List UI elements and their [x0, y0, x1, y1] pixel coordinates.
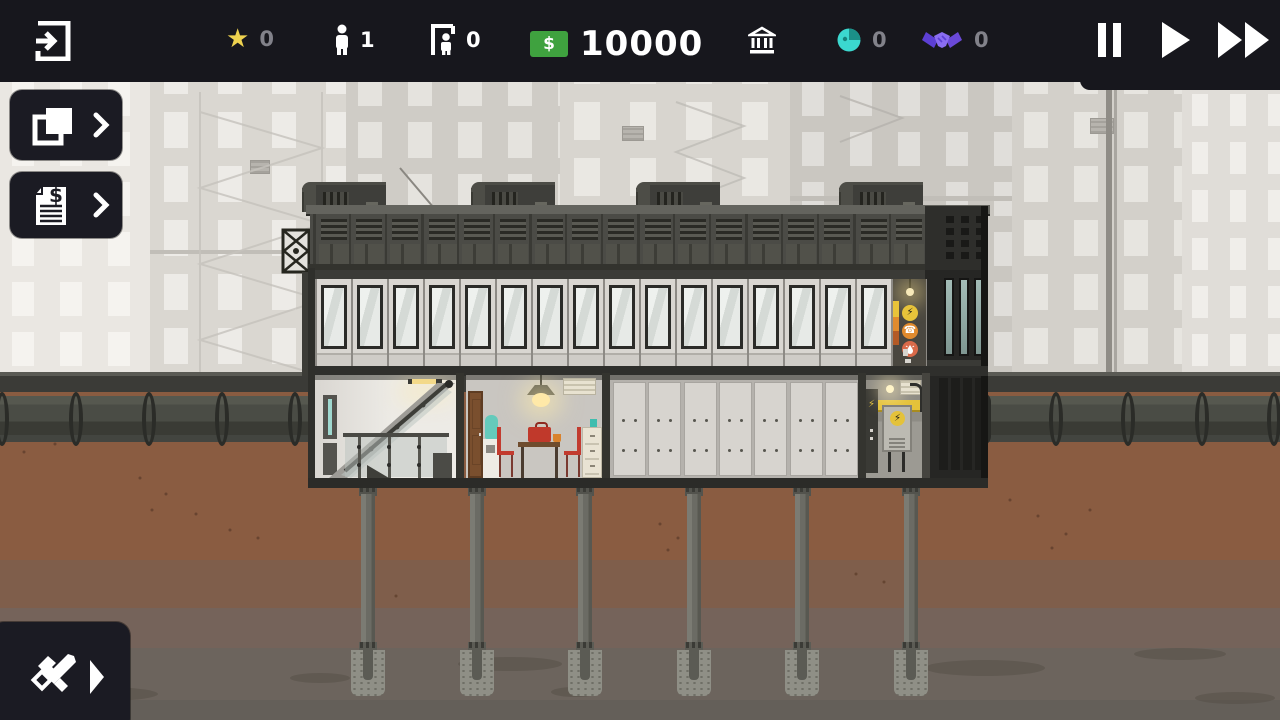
- money-stat: $ 10000: [530, 24, 703, 64]
- pipe-coupling: [1195, 392, 1209, 446]
- pillar-base: [472, 650, 482, 680]
- window-module: [497, 279, 531, 367]
- window-sill: [461, 353, 495, 367]
- tower-vent-slot: [946, 228, 954, 235]
- fast-forward-button[interactable]: [1218, 22, 1269, 62]
- louver-slats: [861, 219, 887, 240]
- contracts-value: 0: [974, 28, 989, 52]
- hanging-bulb: [886, 385, 894, 393]
- break-room[interactable]: [466, 375, 602, 478]
- panel-seam: [509, 244, 512, 264]
- window-sill: [389, 353, 423, 367]
- window-module: [461, 279, 495, 367]
- louver-slats: [464, 219, 490, 240]
- panel-seam: [330, 244, 333, 264]
- panel-seam: [365, 244, 368, 264]
- panel-seam: [401, 244, 404, 264]
- panel-screws: [622, 419, 625, 422]
- door-panel: [472, 435, 481, 465]
- pillar-notch: [366, 642, 369, 648]
- panel-screws: [834, 449, 837, 452]
- indicator-dot: [870, 437, 873, 440]
- table-leg: [521, 447, 524, 478]
- window-sill: [533, 353, 567, 367]
- chair-leg: [566, 455, 568, 477]
- person-icon: [334, 24, 350, 56]
- population-value: 1: [360, 28, 375, 52]
- window-module: [389, 279, 423, 367]
- panel-screws: [799, 419, 802, 422]
- tower-fin: [951, 378, 960, 470]
- panel-screws: [728, 449, 731, 452]
- pillar-notch: [915, 642, 918, 648]
- window-sill: [605, 353, 639, 367]
- workers-value: 0: [466, 28, 481, 52]
- pillar-notch: [577, 642, 580, 648]
- window-sill: [569, 353, 603, 367]
- louver-slats: [537, 219, 563, 240]
- door-knob: [479, 433, 481, 436]
- roof-louver-panel: [637, 214, 673, 266]
- pendant-cord: [540, 375, 542, 385]
- wall-switch: [905, 359, 911, 363]
- expand-triangle-icon: [90, 660, 104, 694]
- layers-icon: [32, 105, 76, 147]
- window-glass: [465, 285, 491, 349]
- window-sill: [317, 353, 351, 367]
- plant: [590, 419, 597, 427]
- pillar-notch: [686, 642, 689, 648]
- pipe-coupling: [215, 392, 229, 446]
- louver-slats: [356, 219, 382, 240]
- wall-panel: [719, 382, 752, 476]
- window-glass: [393, 285, 419, 349]
- pillar-notch: [909, 642, 912, 648]
- dollar-badge-icon: $: [530, 31, 568, 57]
- pillar-notch: [481, 642, 484, 648]
- electrical-room[interactable]: ⚡ ⚡: [866, 375, 922, 478]
- window-glass: [753, 285, 779, 349]
- lightning-mark-icon: ⚡: [868, 399, 875, 410]
- panel-seam: [725, 244, 728, 264]
- chair: [577, 427, 581, 453]
- window-module: [353, 279, 387, 367]
- pillar-notch: [583, 642, 586, 648]
- window-glass: [681, 285, 707, 349]
- foundation-pillar: [687, 494, 701, 646]
- foundation-pillar: [578, 494, 592, 646]
- building-left-edge: [308, 268, 315, 488]
- contracts-stat: 0: [920, 26, 989, 54]
- window-glass: [861, 285, 887, 349]
- pipe-coupling: [1267, 392, 1280, 446]
- pendant-glow: [532, 393, 550, 407]
- roof-louver-panel: [601, 214, 637, 266]
- door-panel: [472, 399, 481, 429]
- pillar-notch: [903, 642, 906, 648]
- roof-louver-panel: [313, 214, 349, 266]
- game-viewport: ⚡ ☎: [0, 0, 1280, 720]
- louver-slats: [500, 219, 526, 240]
- pillar-notch: [794, 642, 797, 648]
- underground-pipe-left: [0, 396, 318, 442]
- drawer: [585, 430, 599, 445]
- exit-button[interactable]: [34, 21, 72, 61]
- panel-screws: [728, 419, 731, 422]
- roof-louver-panel: [565, 214, 601, 266]
- panel-screws: [799, 449, 802, 452]
- workers-stat: 0: [430, 24, 481, 56]
- cabinet-leg: [888, 452, 891, 472]
- louver-slats: [572, 219, 598, 240]
- wall-panel: [648, 382, 681, 476]
- water-cooler-dispenser: [486, 445, 495, 453]
- hanging-bulb: [906, 288, 914, 296]
- chevron-right-icon: [92, 192, 110, 218]
- foundation-slab: [308, 478, 988, 488]
- window-glass: [321, 285, 347, 349]
- prestige-stat: ★ 0: [226, 26, 274, 52]
- pipe-coupling: [69, 392, 83, 446]
- foundation-pillar: [470, 494, 484, 646]
- louver-slats: [788, 219, 814, 240]
- panel-screws: [657, 419, 660, 422]
- window-module: [641, 279, 675, 367]
- roof-louver-panel: [493, 214, 529, 266]
- window-glass: [537, 285, 563, 349]
- roof-louver-panel: [673, 214, 709, 266]
- window-sill: [497, 353, 531, 367]
- window-glass: [609, 285, 635, 349]
- window-glass: [357, 285, 383, 349]
- influence-icon: [836, 27, 862, 53]
- staircase: [315, 375, 456, 478]
- red-toolbox: [528, 427, 551, 442]
- pillar-notch: [475, 642, 478, 648]
- tower-vent-slot: [961, 216, 969, 223]
- roof-louver-panel: [853, 214, 889, 266]
- louver-slats: [716, 219, 742, 240]
- window-module: [821, 279, 855, 367]
- fast-forward-icon: [1245, 22, 1269, 58]
- handshake-icon: [920, 26, 964, 54]
- window-sill: [749, 353, 783, 367]
- louver-slats: [429, 219, 455, 240]
- roof-louver-panel: [709, 214, 745, 266]
- pipe-coupling: [1049, 392, 1063, 446]
- cabinet-grill: [889, 438, 905, 448]
- window-sill: [713, 353, 747, 367]
- louver-slats: [896, 219, 922, 240]
- tower-fin: [963, 378, 972, 470]
- tower-vent-slot: [961, 252, 969, 259]
- foundation-pillar: [361, 494, 375, 646]
- stripe-decor: [893, 301, 899, 317]
- chair-leg: [511, 455, 513, 477]
- build-tools-button[interactable]: [0, 622, 130, 720]
- window-glass: [573, 285, 599, 349]
- influence-value: 0: [872, 28, 887, 52]
- pillar-notch: [360, 642, 363, 648]
- window-glass: [789, 285, 815, 349]
- wall-switch: [903, 349, 908, 356]
- ceiling-band: [313, 270, 925, 279]
- tower-vent-slot: [946, 240, 954, 247]
- table: [518, 442, 560, 447]
- room-divider: [922, 373, 930, 481]
- louver-slats: [680, 219, 706, 240]
- power-alert-icon[interactable]: ⚡: [902, 305, 918, 321]
- influence-stat: 0: [836, 27, 887, 53]
- elevator-tower-vents: [925, 206, 987, 270]
- tower-vent-slot: [946, 216, 954, 223]
- tower-vent-slot: [961, 228, 969, 235]
- wall-panel: [790, 382, 823, 476]
- pillar-notch: [589, 642, 592, 648]
- pillar-notch: [806, 642, 809, 648]
- phone-alert-icon[interactable]: ☎: [902, 323, 918, 339]
- pipe-coupling: [1121, 392, 1135, 446]
- roof-louver-panel: [385, 214, 421, 266]
- roof-louver-panel: [529, 214, 565, 266]
- window-module: [317, 279, 351, 367]
- ac-vent: [563, 378, 596, 395]
- panel-seam: [762, 244, 765, 264]
- stripe-decor: [893, 331, 899, 345]
- roof-louver-panel: [817, 214, 853, 266]
- window-module: [425, 279, 459, 367]
- window-glass: [645, 285, 671, 349]
- wall-panel: [754, 382, 787, 476]
- room-divider: [858, 373, 866, 481]
- elevator-shaft[interactable]: [925, 270, 987, 482]
- roof-louver-panel: [349, 214, 385, 266]
- stairwell-room[interactable]: [315, 375, 456, 478]
- tower-edge: [981, 206, 988, 482]
- drawer: [585, 445, 599, 460]
- pipe-coupling: [142, 392, 156, 446]
- chair-leg: [499, 455, 501, 477]
- pillar-base: [580, 650, 590, 680]
- louver-slats: [753, 219, 779, 240]
- invoice-icon: $: [32, 184, 74, 228]
- pause-icon: [1113, 23, 1121, 57]
- pause-icon: [1098, 23, 1106, 57]
- chair-leg: [578, 455, 580, 477]
- window-sill: [641, 353, 675, 367]
- person-door-icon: [430, 24, 456, 56]
- elevator-glass-slot: [944, 278, 954, 356]
- bank-icon: [748, 26, 776, 56]
- window-sill: [785, 353, 819, 367]
- foundation-pillar: [904, 494, 918, 646]
- pillar-notch: [692, 642, 695, 648]
- top-bar: ★ 0 1 0 $ 10000: [0, 0, 1280, 82]
- room-divider: [602, 373, 610, 481]
- panel-screws: [622, 449, 625, 452]
- tower-vent-slot: [946, 252, 954, 259]
- chevron-right-icon: [92, 112, 110, 138]
- window-module: [569, 279, 603, 367]
- roof-louver-panel: [889, 214, 925, 266]
- play-button[interactable]: [1162, 22, 1190, 62]
- roof-louver-panel: [457, 214, 493, 266]
- window-glass: [717, 285, 743, 349]
- finances-panel-button[interactable]: $: [10, 172, 122, 238]
- window-sill: [677, 353, 711, 367]
- panel-screws: [657, 449, 660, 452]
- panel-seam: [654, 244, 657, 264]
- panel-screws: [834, 419, 837, 422]
- wall-panel: [613, 382, 646, 476]
- window-module: [677, 279, 711, 367]
- window-sill: [425, 353, 459, 367]
- tower-vent-slot: [961, 240, 969, 247]
- pillar-notch: [469, 642, 472, 648]
- wall-panel: [825, 382, 858, 476]
- foundation-pillar: [795, 494, 809, 646]
- roof-louver-panel: [421, 214, 457, 266]
- louver-slats: [824, 219, 850, 240]
- file-cabinet: [582, 427, 602, 478]
- panel-seam: [438, 244, 441, 264]
- money-value: 10000: [580, 24, 703, 64]
- roof-louver-panel: [745, 214, 781, 266]
- panel-seam: [905, 244, 908, 264]
- chair: [497, 427, 501, 453]
- roof-louver-panel: [781, 214, 817, 266]
- panel-seam: [473, 244, 476, 264]
- table-leg: [555, 447, 558, 478]
- prestige-value: 0: [259, 27, 274, 51]
- panel-screws: [693, 449, 696, 452]
- panel-screws: [763, 449, 766, 452]
- panel-screws: [693, 419, 696, 422]
- empty-unit-room[interactable]: [610, 375, 860, 478]
- pillar-base: [906, 650, 916, 680]
- coffee-mug: [553, 434, 561, 442]
- play-icon: [1162, 22, 1190, 58]
- svg-text:$: $: [49, 184, 63, 207]
- panel-seam: [797, 244, 800, 264]
- pipe-coupling: [288, 392, 302, 446]
- room-divider: [456, 373, 464, 481]
- hammer-saw-icon: [30, 648, 88, 706]
- electrical-column: ⚡: [866, 389, 878, 473]
- elevator-glass-slot: [959, 278, 969, 356]
- window-module: [749, 279, 783, 367]
- floors-panel-button[interactable]: [10, 90, 122, 160]
- lamp-cord: [909, 279, 911, 288]
- panel-seam: [546, 244, 549, 264]
- fast-forward-icon: [1218, 22, 1242, 58]
- population-stat: 1: [334, 24, 375, 56]
- star-icon: ★: [226, 26, 249, 52]
- pillar-notch: [698, 642, 701, 648]
- lobby-floor[interactable]: [315, 279, 927, 367]
- wall-panel: [684, 382, 717, 476]
- window-module: [857, 279, 891, 367]
- louver-slats: [608, 219, 634, 240]
- pillar-base: [689, 650, 699, 680]
- louver-slats: [645, 219, 671, 240]
- mechanical-floor[interactable]: [310, 214, 928, 270]
- pause-button[interactable]: [1098, 23, 1128, 61]
- pillar-notch: [800, 642, 803, 648]
- drawer: [585, 460, 599, 475]
- indicator-dot: [870, 429, 873, 432]
- room-ceiling: [610, 375, 860, 380]
- window-sill: [353, 353, 387, 367]
- window-sill: [857, 353, 891, 367]
- electrical-cabinet: ⚡: [882, 405, 912, 452]
- bank-button[interactable]: [748, 26, 776, 60]
- window-glass: [501, 285, 527, 349]
- power-badge-icon: ⚡: [890, 411, 905, 426]
- window-module: [605, 279, 639, 367]
- window-sill: [821, 353, 855, 367]
- panel-seam: [689, 244, 692, 264]
- panel-screws: [763, 419, 766, 422]
- window-module: [713, 279, 747, 367]
- pillar-base: [363, 650, 373, 680]
- panel-seam: [581, 244, 584, 264]
- window-module: [785, 279, 819, 367]
- panel-seam: [617, 244, 620, 264]
- panel-seam: [870, 244, 873, 264]
- louver-slats: [392, 219, 418, 240]
- window-module: [533, 279, 567, 367]
- utility-closet[interactable]: ⚡ ☎: [893, 279, 926, 367]
- panel-seam: [833, 244, 836, 264]
- window-glass: [429, 285, 455, 349]
- pillar-base: [797, 650, 807, 680]
- cabinet-leg: [902, 452, 905, 472]
- tower-fin: [939, 378, 948, 470]
- window-glass: [825, 285, 851, 349]
- pillar-notch: [372, 642, 375, 648]
- stripe-decor: [893, 317, 899, 331]
- louver-slats: [321, 219, 347, 240]
